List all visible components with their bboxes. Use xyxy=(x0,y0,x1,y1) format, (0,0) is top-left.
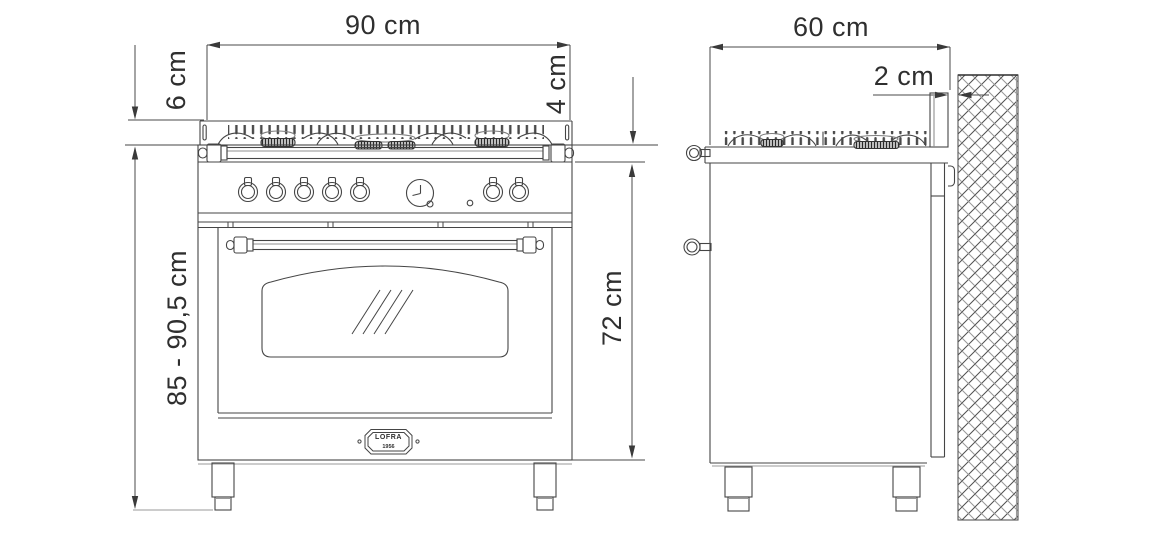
control-knob xyxy=(267,178,286,202)
control-knob xyxy=(295,178,314,202)
dimension-label-depth: 60 cm xyxy=(761,12,901,42)
dimension-label-overall-height: 85 - 90,5 cm xyxy=(162,228,192,428)
front-rail xyxy=(199,144,574,162)
brand-badge: LOFRA xyxy=(363,433,414,442)
side-cooktop xyxy=(687,131,949,163)
range-cooker-dimension-drawing: 90 cm 60 cm 2 cm 6 cm 4 cm 85 - 90,5 cm … xyxy=(0,0,1152,539)
brand-badge-year: 1956 xyxy=(363,443,414,450)
control-knob xyxy=(239,178,258,202)
oven-door-handle xyxy=(227,237,544,253)
wall-section xyxy=(958,75,1018,520)
dimension-label-edge-height: 4 cm xyxy=(541,14,571,154)
dimension-label-wall-clearance: 2 cm xyxy=(834,61,974,91)
side-legs xyxy=(725,467,920,511)
front-legs xyxy=(212,463,556,510)
side-rail-knob xyxy=(687,146,711,161)
dimension-label-body-height: 72 cm xyxy=(597,238,627,378)
control-knob xyxy=(351,178,370,202)
side-upstand xyxy=(930,93,948,147)
window-reflection-hatch xyxy=(352,290,413,334)
dimension-label-upstand-height: 6 cm xyxy=(161,10,191,150)
control-knob xyxy=(510,178,529,202)
dimension-label-width: 90 cm xyxy=(313,10,453,40)
control-knob xyxy=(484,178,503,202)
control-panel xyxy=(239,178,529,208)
gas-connection-bracket xyxy=(948,166,955,186)
side-body xyxy=(684,163,955,466)
clock-timer xyxy=(407,180,434,208)
side-view xyxy=(684,75,1018,520)
oven-door-window xyxy=(262,266,508,357)
indicator-light xyxy=(467,200,473,206)
front-view xyxy=(125,121,658,510)
side-door-handle-knob xyxy=(684,239,711,255)
oven-door xyxy=(218,228,552,419)
control-knob xyxy=(323,178,342,202)
